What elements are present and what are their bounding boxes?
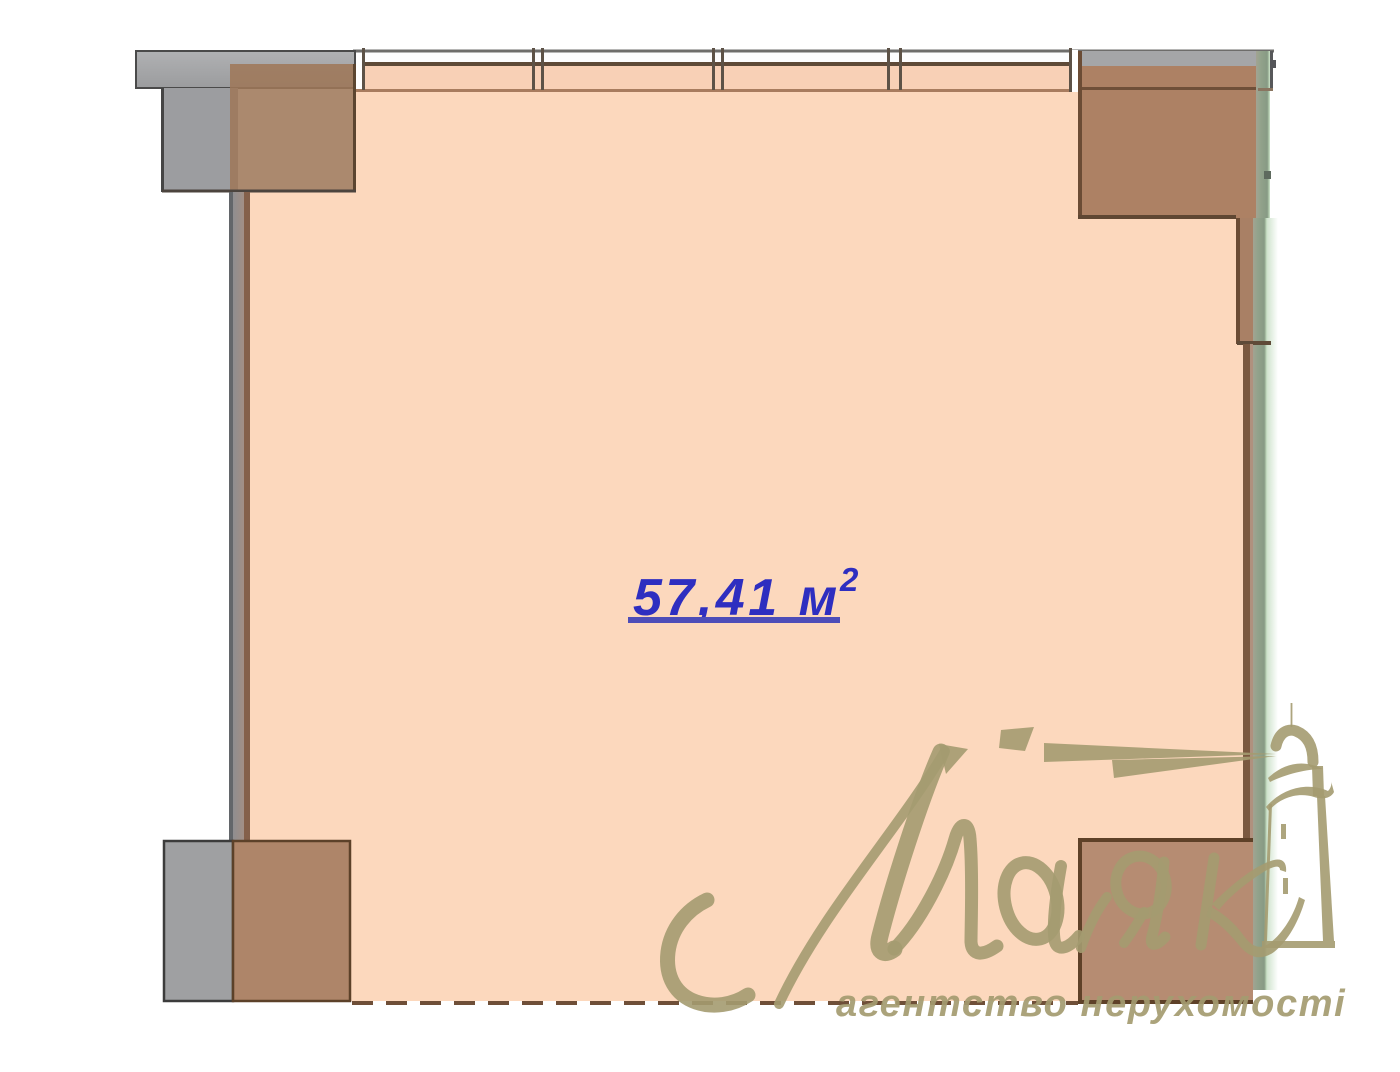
svg-text:2: 2 (839, 561, 859, 598)
svg-text:агентство нерухомості: агентство нерухомості (836, 983, 1346, 1025)
